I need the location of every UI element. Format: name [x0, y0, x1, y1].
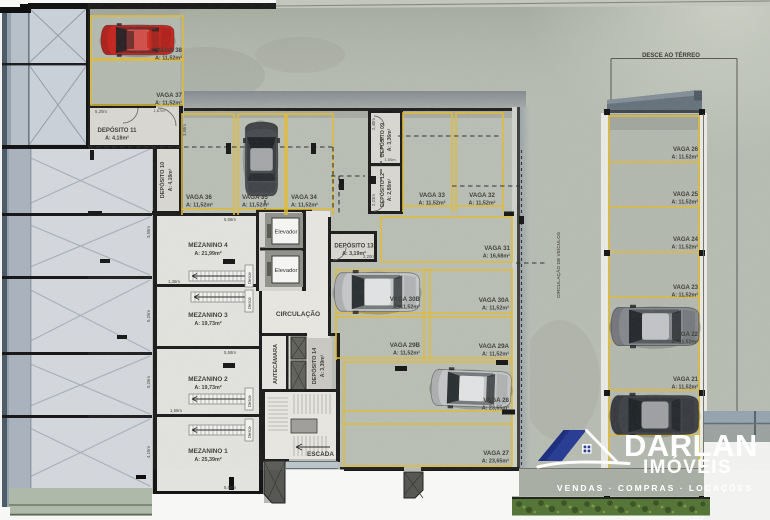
svg-text:5,58m: 5,58m — [224, 485, 236, 490]
svg-text:IMÓVEIS: IMÓVEIS — [643, 456, 732, 478]
svg-text:VENDAS · COMPRAS · LOCAÇÕES: VENDAS · COMPRAS · LOCAÇÕES — [557, 483, 753, 493]
